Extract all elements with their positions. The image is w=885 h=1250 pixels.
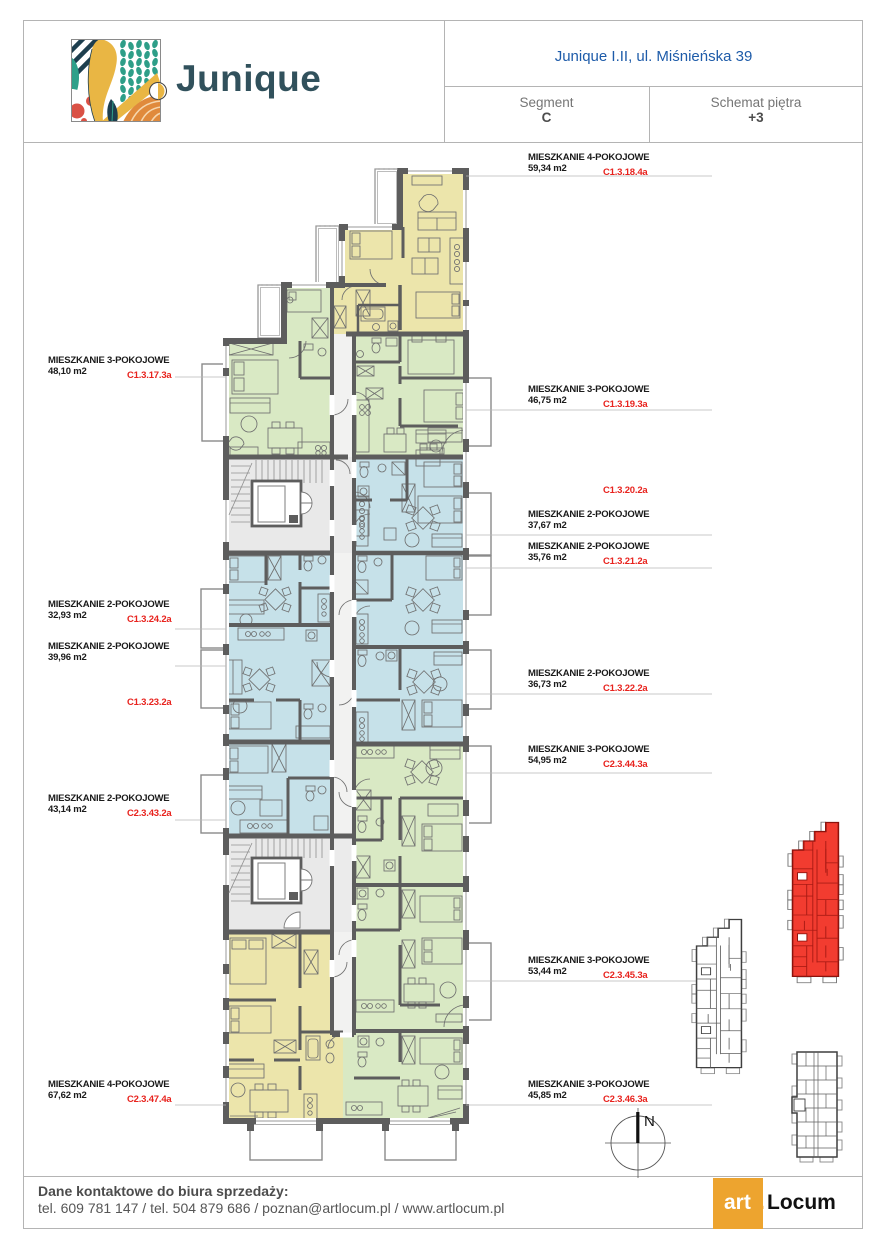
svg-text:N: N: [644, 1113, 655, 1130]
